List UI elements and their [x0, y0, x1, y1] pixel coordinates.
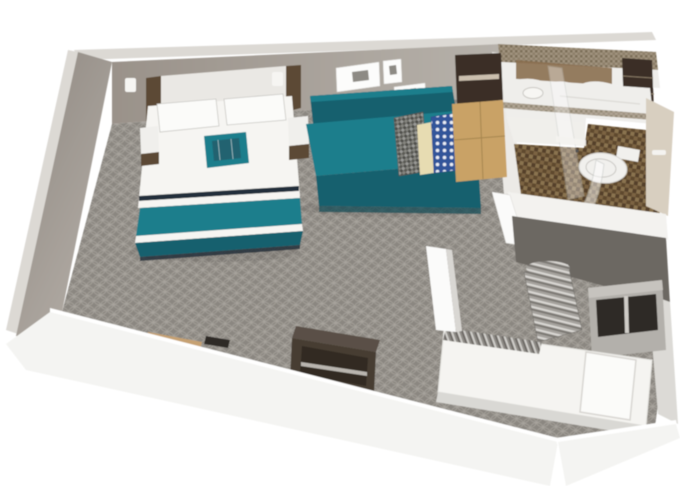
- nightstand-right-front: [289, 144, 309, 160]
- shower-door-handle: [575, 149, 578, 152]
- nightstand-left-front: [141, 152, 159, 166]
- tv-console: [452, 53, 507, 182]
- pillow-right: [224, 94, 286, 125]
- privacy-curtain-top: [526, 261, 570, 275]
- nightstand-right-top: [288, 116, 309, 146]
- king-bed: [130, 94, 309, 262]
- art-frame-2-print: [389, 65, 397, 75]
- wall-sconce-left: [125, 78, 136, 92]
- suite-render: [0, 0, 680, 486]
- twin-bed-pillow: [580, 352, 636, 420]
- towel-ring: [652, 150, 666, 155]
- console-tan-cabinet: [452, 100, 507, 182]
- throw-pillow-plaid: [212, 138, 241, 161]
- pillow-left: [157, 99, 219, 132]
- floorplan-svg: [0, 0, 680, 486]
- bathroom-right-wall: [646, 98, 674, 216]
- wall-sconce-right: [272, 72, 283, 86]
- art-frame-1-print: [352, 70, 369, 82]
- nightstand-left-top: [140, 126, 159, 154]
- room-cutaway: [6, 32, 680, 486]
- sink-basin: [523, 88, 543, 99]
